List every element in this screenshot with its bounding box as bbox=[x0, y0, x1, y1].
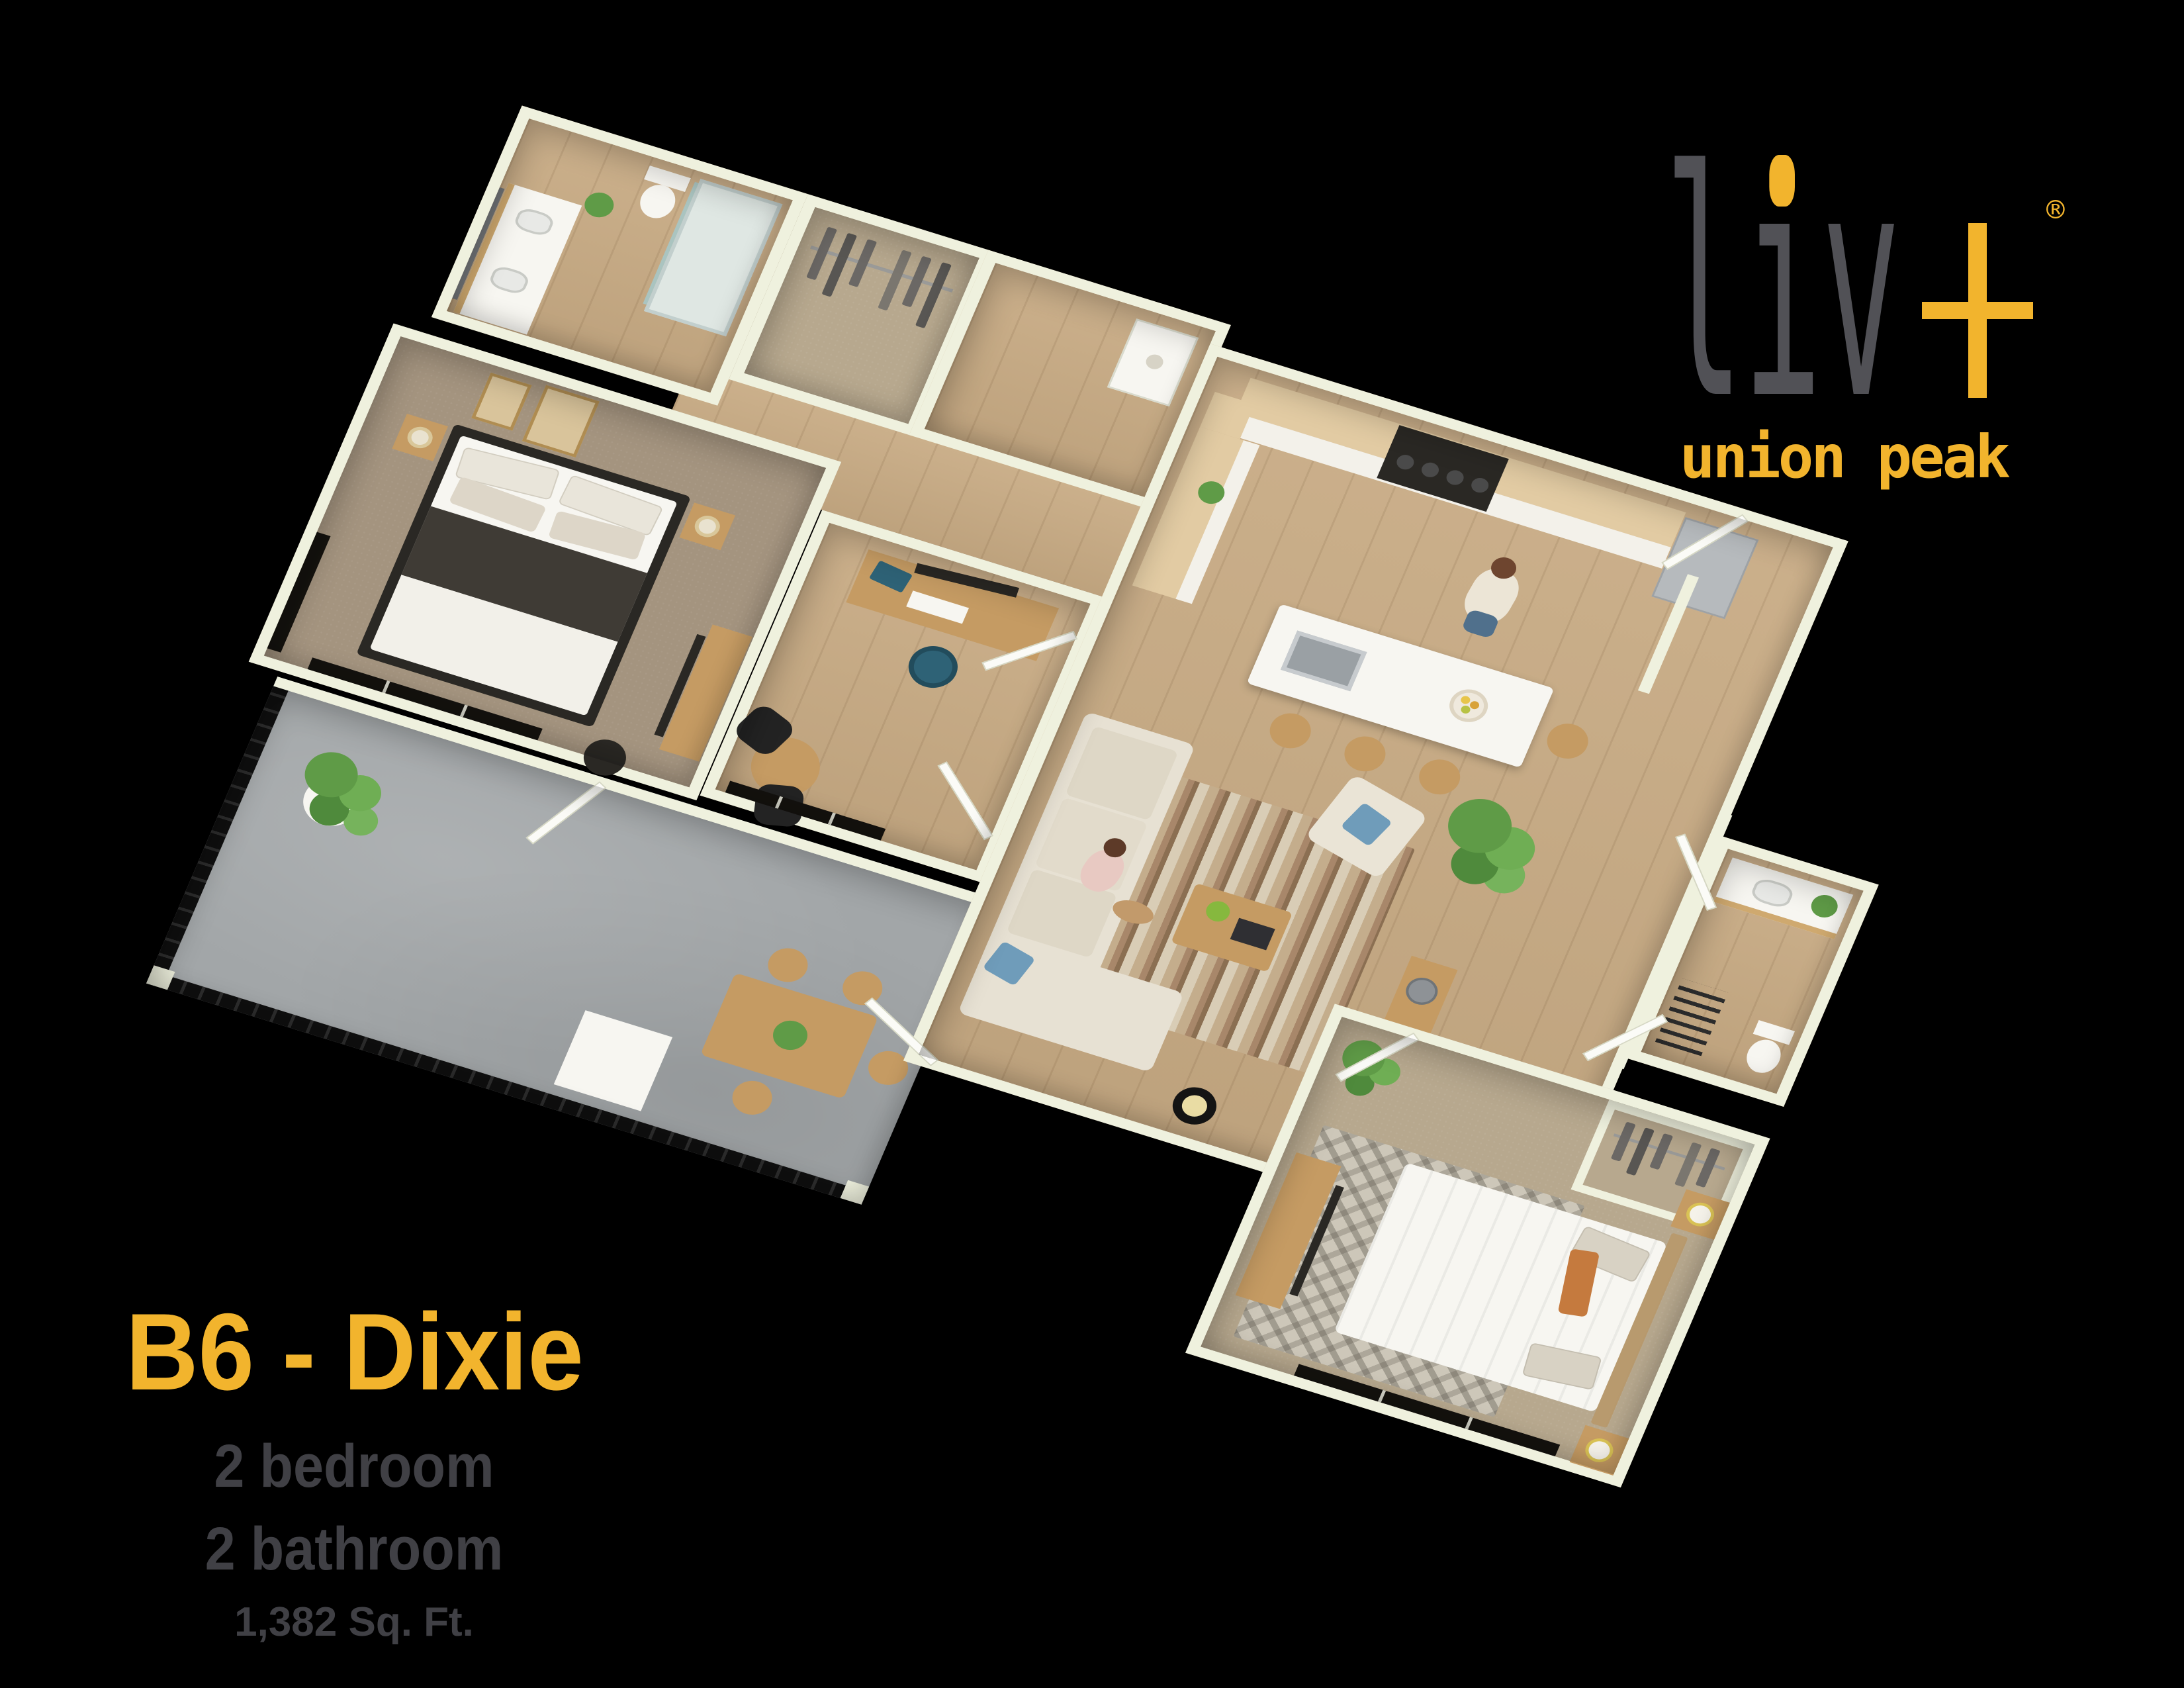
burner bbox=[1394, 453, 1416, 471]
plus-icon bbox=[1922, 223, 2033, 398]
dining-chair bbox=[727, 1076, 778, 1119]
unit-area: 1,382 Sq. Ft. bbox=[126, 1599, 582, 1646]
unit-bedrooms: 2 bedroom bbox=[149, 1432, 560, 1501]
dining-chair bbox=[762, 943, 813, 986]
registered-icon: ® bbox=[2046, 192, 2065, 228]
den-door bbox=[938, 761, 994, 840]
wall-art bbox=[522, 385, 600, 457]
indoor-tree bbox=[1439, 791, 1521, 861]
floorplan-sheet: liv ® union peak B6 - Dixie 2 bedroom 2 … bbox=[0, 0, 2184, 1688]
patio-railing-side bbox=[146, 686, 289, 988]
island-sink bbox=[1281, 631, 1367, 692]
wall-art bbox=[471, 373, 531, 431]
burner bbox=[1444, 468, 1466, 487]
office-chair bbox=[902, 640, 965, 694]
unit-name: B6 - Dixie bbox=[126, 1289, 546, 1415]
patio-glass-door bbox=[526, 781, 607, 844]
unit-info: B6 - Dixie 2 bedroom 2 bathroom 1,382 Sq… bbox=[126, 1289, 582, 1646]
stool bbox=[1541, 719, 1594, 764]
closet-2 bbox=[1570, 1100, 1754, 1235]
stool bbox=[1339, 731, 1391, 776]
logo-gold-dot-icon bbox=[1769, 155, 1795, 207]
fruit-bowl bbox=[1444, 685, 1493, 727]
burner bbox=[1419, 461, 1441, 479]
plus-horizontal-bar bbox=[1922, 302, 2033, 319]
burner bbox=[1469, 476, 1491, 494]
window bbox=[267, 532, 331, 653]
stool bbox=[1264, 708, 1316, 753]
patio-box bbox=[554, 1010, 672, 1111]
bathroom-plant bbox=[580, 189, 617, 221]
stool bbox=[1413, 755, 1465, 800]
logo-wordmark: liv bbox=[1664, 131, 1901, 442]
brand-logo: liv ® union peak bbox=[1655, 93, 2105, 424]
railing-post bbox=[841, 1180, 870, 1205]
dining-chair bbox=[837, 966, 888, 1009]
floor-lamp bbox=[1167, 1082, 1223, 1130]
brand-subtitle: union peak bbox=[1680, 422, 2008, 491]
unit-bathrooms: 2 bathroom bbox=[149, 1515, 560, 1584]
towel-ladder bbox=[1655, 978, 1729, 1056]
